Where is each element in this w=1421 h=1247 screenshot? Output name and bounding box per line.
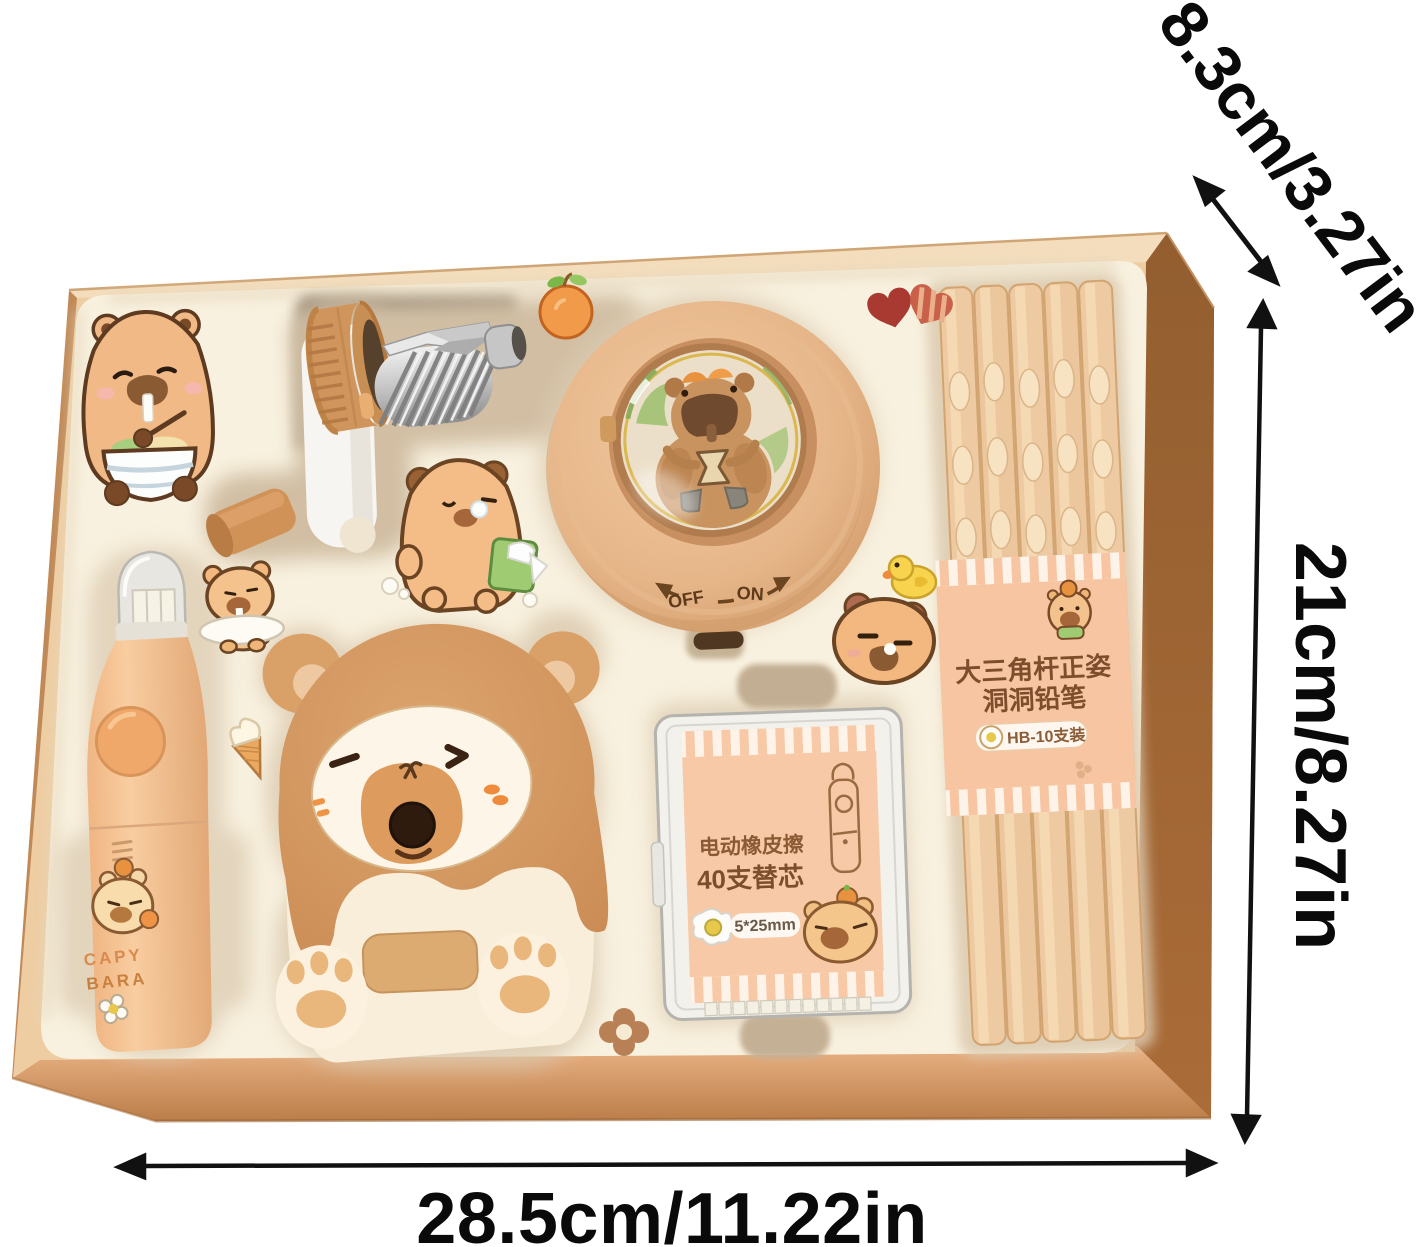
svg-text:ON: ON: [736, 583, 764, 605]
svg-text:电动橡皮擦: 电动橡皮擦: [698, 832, 804, 860]
svg-text:5*25mm: 5*25mm: [734, 917, 796, 936]
svg-text:40支替芯: 40支替芯: [697, 861, 805, 895]
svg-text:洞洞铅笔: 洞洞铅笔: [982, 682, 1087, 717]
svg-text:28.5cm/11.22in: 28.5cm/11.22in: [416, 1179, 927, 1247]
svg-text:21cm/8.27in: 21cm/8.27in: [1280, 542, 1360, 950]
